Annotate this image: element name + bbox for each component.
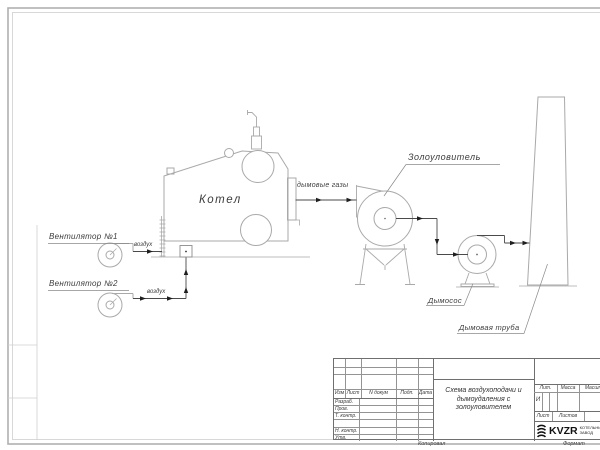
kvzr-spring-icon <box>536 424 547 438</box>
tb-divider <box>334 405 433 406</box>
tb-col-data: Дата <box>418 390 433 396</box>
tb-lit-label: Лит. <box>534 385 557 391</box>
tb-masshtab-label: Масштаб <box>579 385 600 391</box>
tb-row-nkontr: Н. контр. <box>335 428 358 434</box>
flue-gas-label: дымовые газы <box>297 182 348 189</box>
tb-col-podp: Подп. <box>396 390 418 396</box>
fan2-symbol <box>98 293 133 317</box>
tb-divider <box>396 359 397 441</box>
fan2-label: Вентилятор №2 <box>49 279 118 288</box>
boiler-label: Котел <box>199 194 242 206</box>
fan1-symbol <box>98 243 133 267</box>
document-title-line2: дымоудаления с <box>433 396 534 405</box>
tb-col-list: Лист <box>345 390 361 396</box>
tb-divider <box>334 419 433 420</box>
org-logo-cell: KVZR КОТЕЛЬНЫЙ ЗАВОД <box>536 422 600 440</box>
title-block: Изм Лист N докум Подп. Дата Разраб. Пров… <box>333 358 600 440</box>
document-title-line1: Схема воздухоподачи и <box>433 387 534 396</box>
tb-massa-label: Масса <box>557 385 579 391</box>
kvzr-logo-text: KVZR <box>549 425 578 437</box>
tb-row-prov: Пров. <box>335 406 348 412</box>
chimney-symbol <box>519 97 577 286</box>
tb-row-tkontr: Т. контр. <box>335 413 357 419</box>
ash-catcher-label: Золоуловитель <box>408 152 481 162</box>
safety-valve-icon <box>248 110 262 149</box>
org-name-line2: ЗАВОД <box>580 431 600 436</box>
tb-row-razrab: Разраб. <box>335 399 353 405</box>
air-flow-label-1: воздух <box>134 242 152 248</box>
tb-divider <box>534 411 600 412</box>
ash-catcher-symbol <box>355 185 415 285</box>
document-title: Схема воздухоподачи и дымоудаления с зол… <box>433 379 534 441</box>
kopiroval-label: Копировал <box>418 441 445 447</box>
fan1-label: Вентилятор №1 <box>49 232 118 241</box>
tb-divider <box>542 392 543 411</box>
air-flow-label-2: воздух <box>147 289 165 295</box>
smoke-exhauster-symbol <box>456 236 499 288</box>
tb-listov-label: Листов <box>552 413 584 419</box>
tb-divider <box>534 392 600 393</box>
tb-divider <box>334 374 433 375</box>
tb-divider <box>584 411 585 421</box>
air-inlet-box <box>180 246 192 258</box>
tb-divider <box>549 392 550 411</box>
exhauster-label: Дымосос <box>428 296 462 305</box>
document-title-line3: золоуловителем <box>433 404 534 413</box>
tb-lit-value: И <box>534 397 542 403</box>
tb-row-utv: Утв. <box>335 435 346 441</box>
tb-col-ndokum: N докум <box>361 390 396 396</box>
tb-col-izm: Изм <box>334 390 345 396</box>
drawing-sheet: Вентилятор №1 Вентилятор №2 воздух возду… <box>0 0 600 450</box>
tb-divider <box>334 367 433 368</box>
org-name: КОТЕЛЬНЫЙ ЗАВОД <box>580 426 600 435</box>
tb-divider <box>334 434 433 435</box>
tb-divider <box>418 359 419 441</box>
tb-list-label: Лист <box>534 413 552 419</box>
format-label: Формат <box>563 441 585 447</box>
chimney-label: Дымовая труба <box>459 323 519 332</box>
